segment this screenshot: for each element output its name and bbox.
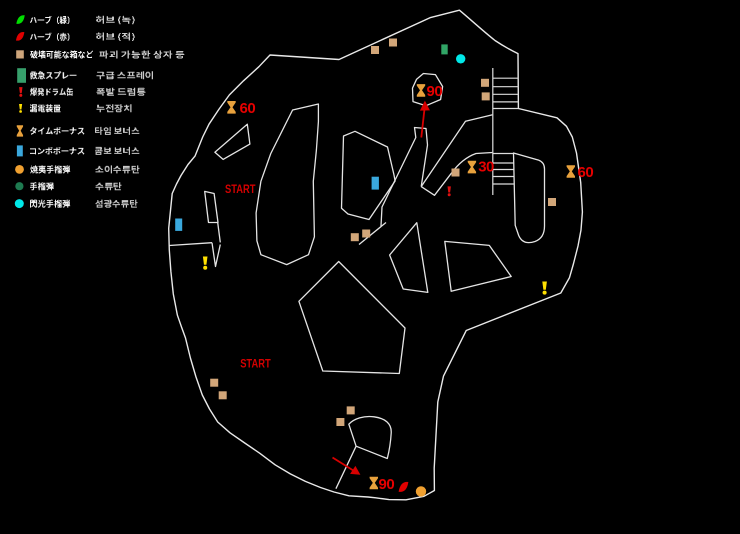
svg-text:60: 60 [578, 164, 594, 181]
svg-text:30: 30 [478, 159, 494, 176]
svg-text:90: 90 [427, 83, 443, 100]
svg-text:90: 90 [379, 476, 395, 493]
svg-text:START: START [240, 357, 271, 371]
svg-text:START: START [225, 182, 256, 196]
svg-text:60: 60 [240, 100, 256, 117]
